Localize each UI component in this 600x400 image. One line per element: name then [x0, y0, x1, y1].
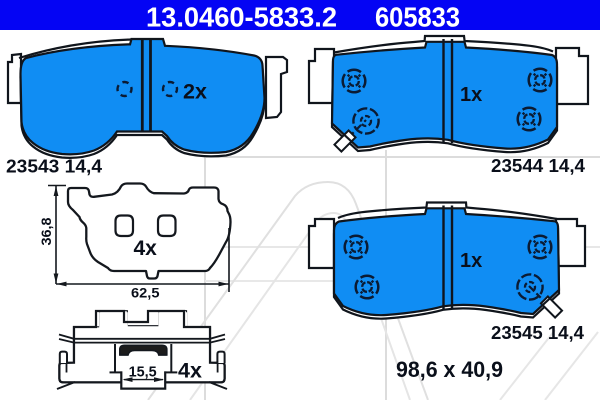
svg-text:1x: 1x — [460, 84, 482, 106]
svg-text:4x: 4x — [178, 359, 202, 383]
svg-text:23545 14,4: 23545 14,4 — [491, 323, 584, 343]
svg-text:2x: 2x — [183, 80, 207, 104]
svg-text:15,5: 15,5 — [129, 364, 157, 380]
svg-text:36,8: 36,8 — [38, 217, 54, 245]
svg-text:98,6 x 40,9: 98,6 x 40,9 — [396, 357, 503, 382]
svg-text:23543 14,4: 23543 14,4 — [6, 157, 102, 177]
svg-text:13.0460-5833.2: 13.0460-5833.2 — [146, 2, 337, 33]
svg-text:23544 14,4: 23544 14,4 — [491, 156, 585, 176]
svg-text:1x: 1x — [460, 250, 482, 272]
svg-text:62,5: 62,5 — [131, 285, 160, 301]
svg-text:4x: 4x — [134, 237, 158, 260]
svg-text:605833: 605833 — [375, 2, 460, 33]
